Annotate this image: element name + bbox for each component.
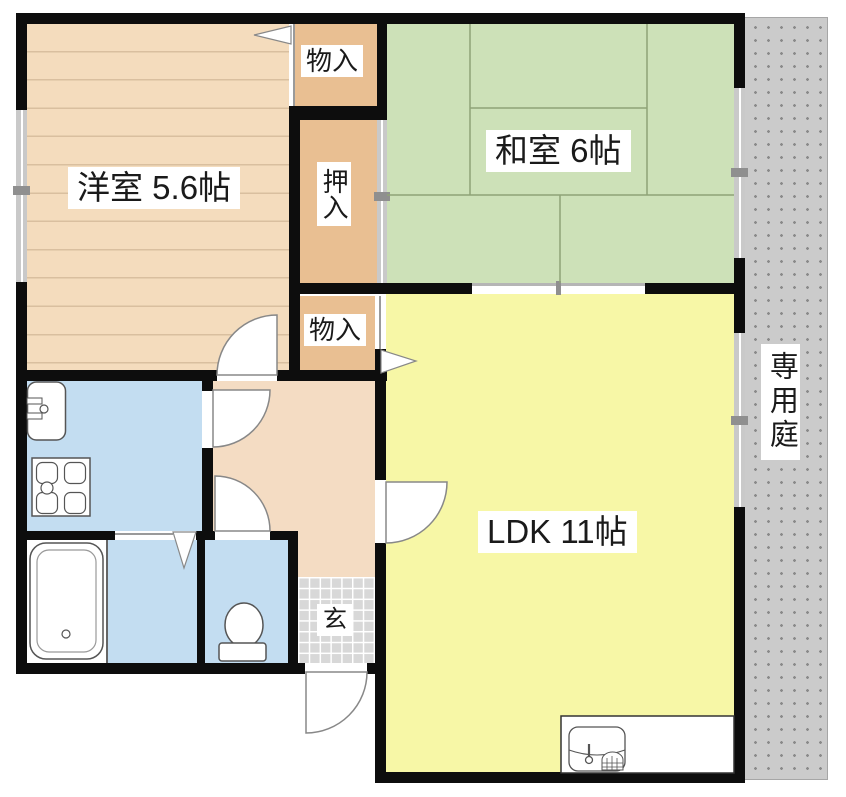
room-toilet [205, 540, 288, 663]
wall-kitchen-hall-main [202, 448, 213, 531]
doorway-kitchen [202, 391, 213, 448]
room-bathroom [27, 540, 106, 663]
storage-door-line [379, 296, 381, 349]
label-ldk: LDK 11帖 [478, 511, 637, 553]
wall-closet-left [289, 106, 300, 381]
window-tick [13, 186, 30, 195]
window-tick [731, 416, 748, 425]
wall-ldk-left-upper [375, 349, 386, 480]
storage-top-door-line [293, 24, 295, 106]
bath-washroom-divider [106, 540, 108, 663]
window-tick [731, 168, 748, 177]
window-western-left [16, 110, 27, 282]
fold-track-line [115, 533, 173, 535]
room-kitchen [27, 381, 202, 531]
hallway-upper [213, 381, 375, 531]
wall-wet-top-a [27, 531, 115, 540]
wall-western-bottom-left [27, 370, 217, 381]
wall-top [16, 13, 745, 24]
label-storage-bottom: 物入 [304, 314, 366, 346]
wall-kitchen-hall-stub [202, 381, 213, 391]
wall-wet-top-b [196, 531, 215, 540]
wall-bottom-left-block [16, 663, 305, 674]
doorway-western [217, 370, 277, 381]
wall-closet-divider1 [289, 106, 387, 120]
label-storage-top: 物入 [301, 45, 363, 77]
wall-storage-top-right [377, 24, 387, 120]
doorway-toilet [215, 531, 270, 540]
doorway-entrance [305, 663, 367, 674]
label-private-garden: 専用庭 [761, 344, 800, 460]
doorway-ldk [375, 480, 386, 543]
wall-ldk-bottom [375, 772, 745, 783]
fusuma-closet-japanese [377, 120, 387, 283]
label-japanese-room: 和室 6帖 [486, 130, 631, 172]
hallway-lower [298, 531, 375, 577]
wall-bottom-stub [367, 663, 386, 674]
door-arc-entrance [306, 672, 367, 733]
wall-toilet-right [288, 540, 298, 663]
room-washroom [108, 540, 197, 663]
wall-washroom-toilet [197, 540, 205, 663]
sliding-tick [556, 281, 561, 295]
floor-plan: 洋室 5.6帖 和室 6帖 LDK 11帖 物入 押入 物入 玄 専用庭 [0, 0, 846, 797]
label-western-room: 洋室 5.6帖 [68, 167, 240, 209]
label-entrance: 玄 [317, 604, 353, 636]
wall-wet-top-c [270, 531, 298, 540]
label-closet-oshiire: 押入 [317, 162, 351, 226]
fusuma-tick [374, 192, 390, 201]
